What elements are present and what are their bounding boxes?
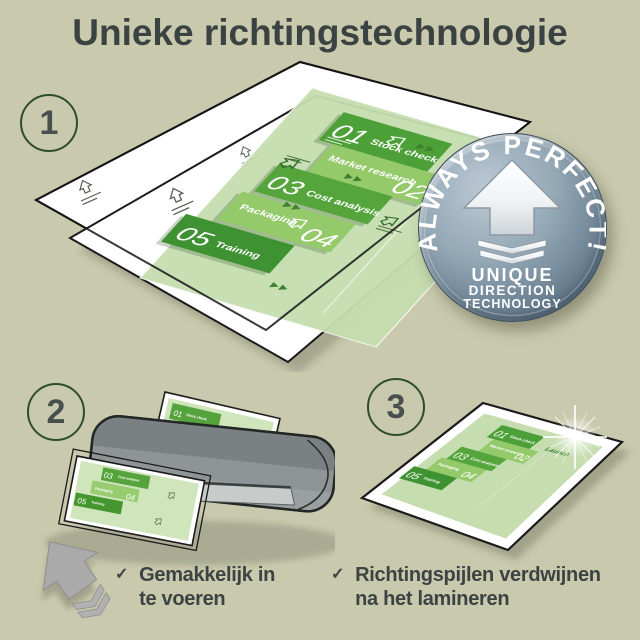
- badge-line2: DIRECTION: [469, 283, 557, 298]
- badge-line1: UNIQUE: [471, 265, 553, 285]
- checklist-item-1: ✓ Gemakkelijk in te voeren: [115, 564, 275, 611]
- checklist-item-1-line1: Gemakkelijk in: [139, 564, 275, 588]
- check-icon: ✓: [115, 566, 128, 611]
- step-3-circle: 3: [367, 378, 425, 436]
- step-1-number: 1: [40, 104, 59, 143]
- checklist-item-2-line1: Richtingspijlen verdwijnen: [355, 564, 601, 588]
- checklist-item-1-line2: te voeren: [139, 588, 275, 612]
- step-3-number: 3: [387, 388, 406, 427]
- checklist-item-2-line2: na het lamineren: [355, 588, 601, 612]
- step-2-circle: 2: [27, 383, 85, 441]
- up-arrow-icon: [464, 160, 560, 235]
- page-title: Unieke richtingstechnologie: [0, 12, 640, 54]
- always-perfect-badge: ALWAYS PERFECT! UNIQUE DIRECTION TECHNOL…: [418, 133, 607, 322]
- check-icon: ✓: [331, 566, 344, 611]
- badge-line3: TECHNOLOGY: [463, 297, 561, 311]
- step-2-number: 2: [47, 393, 66, 432]
- step-1-circle: 1: [20, 94, 78, 152]
- badge-graphic: ALWAYS PERFECT! UNIQUE DIRECTION TECHNOL…: [419, 134, 606, 321]
- sparkle-center: [572, 434, 579, 441]
- checklist-item-2: ✓ Richtingspijlen verdwijnen na het lami…: [331, 564, 601, 611]
